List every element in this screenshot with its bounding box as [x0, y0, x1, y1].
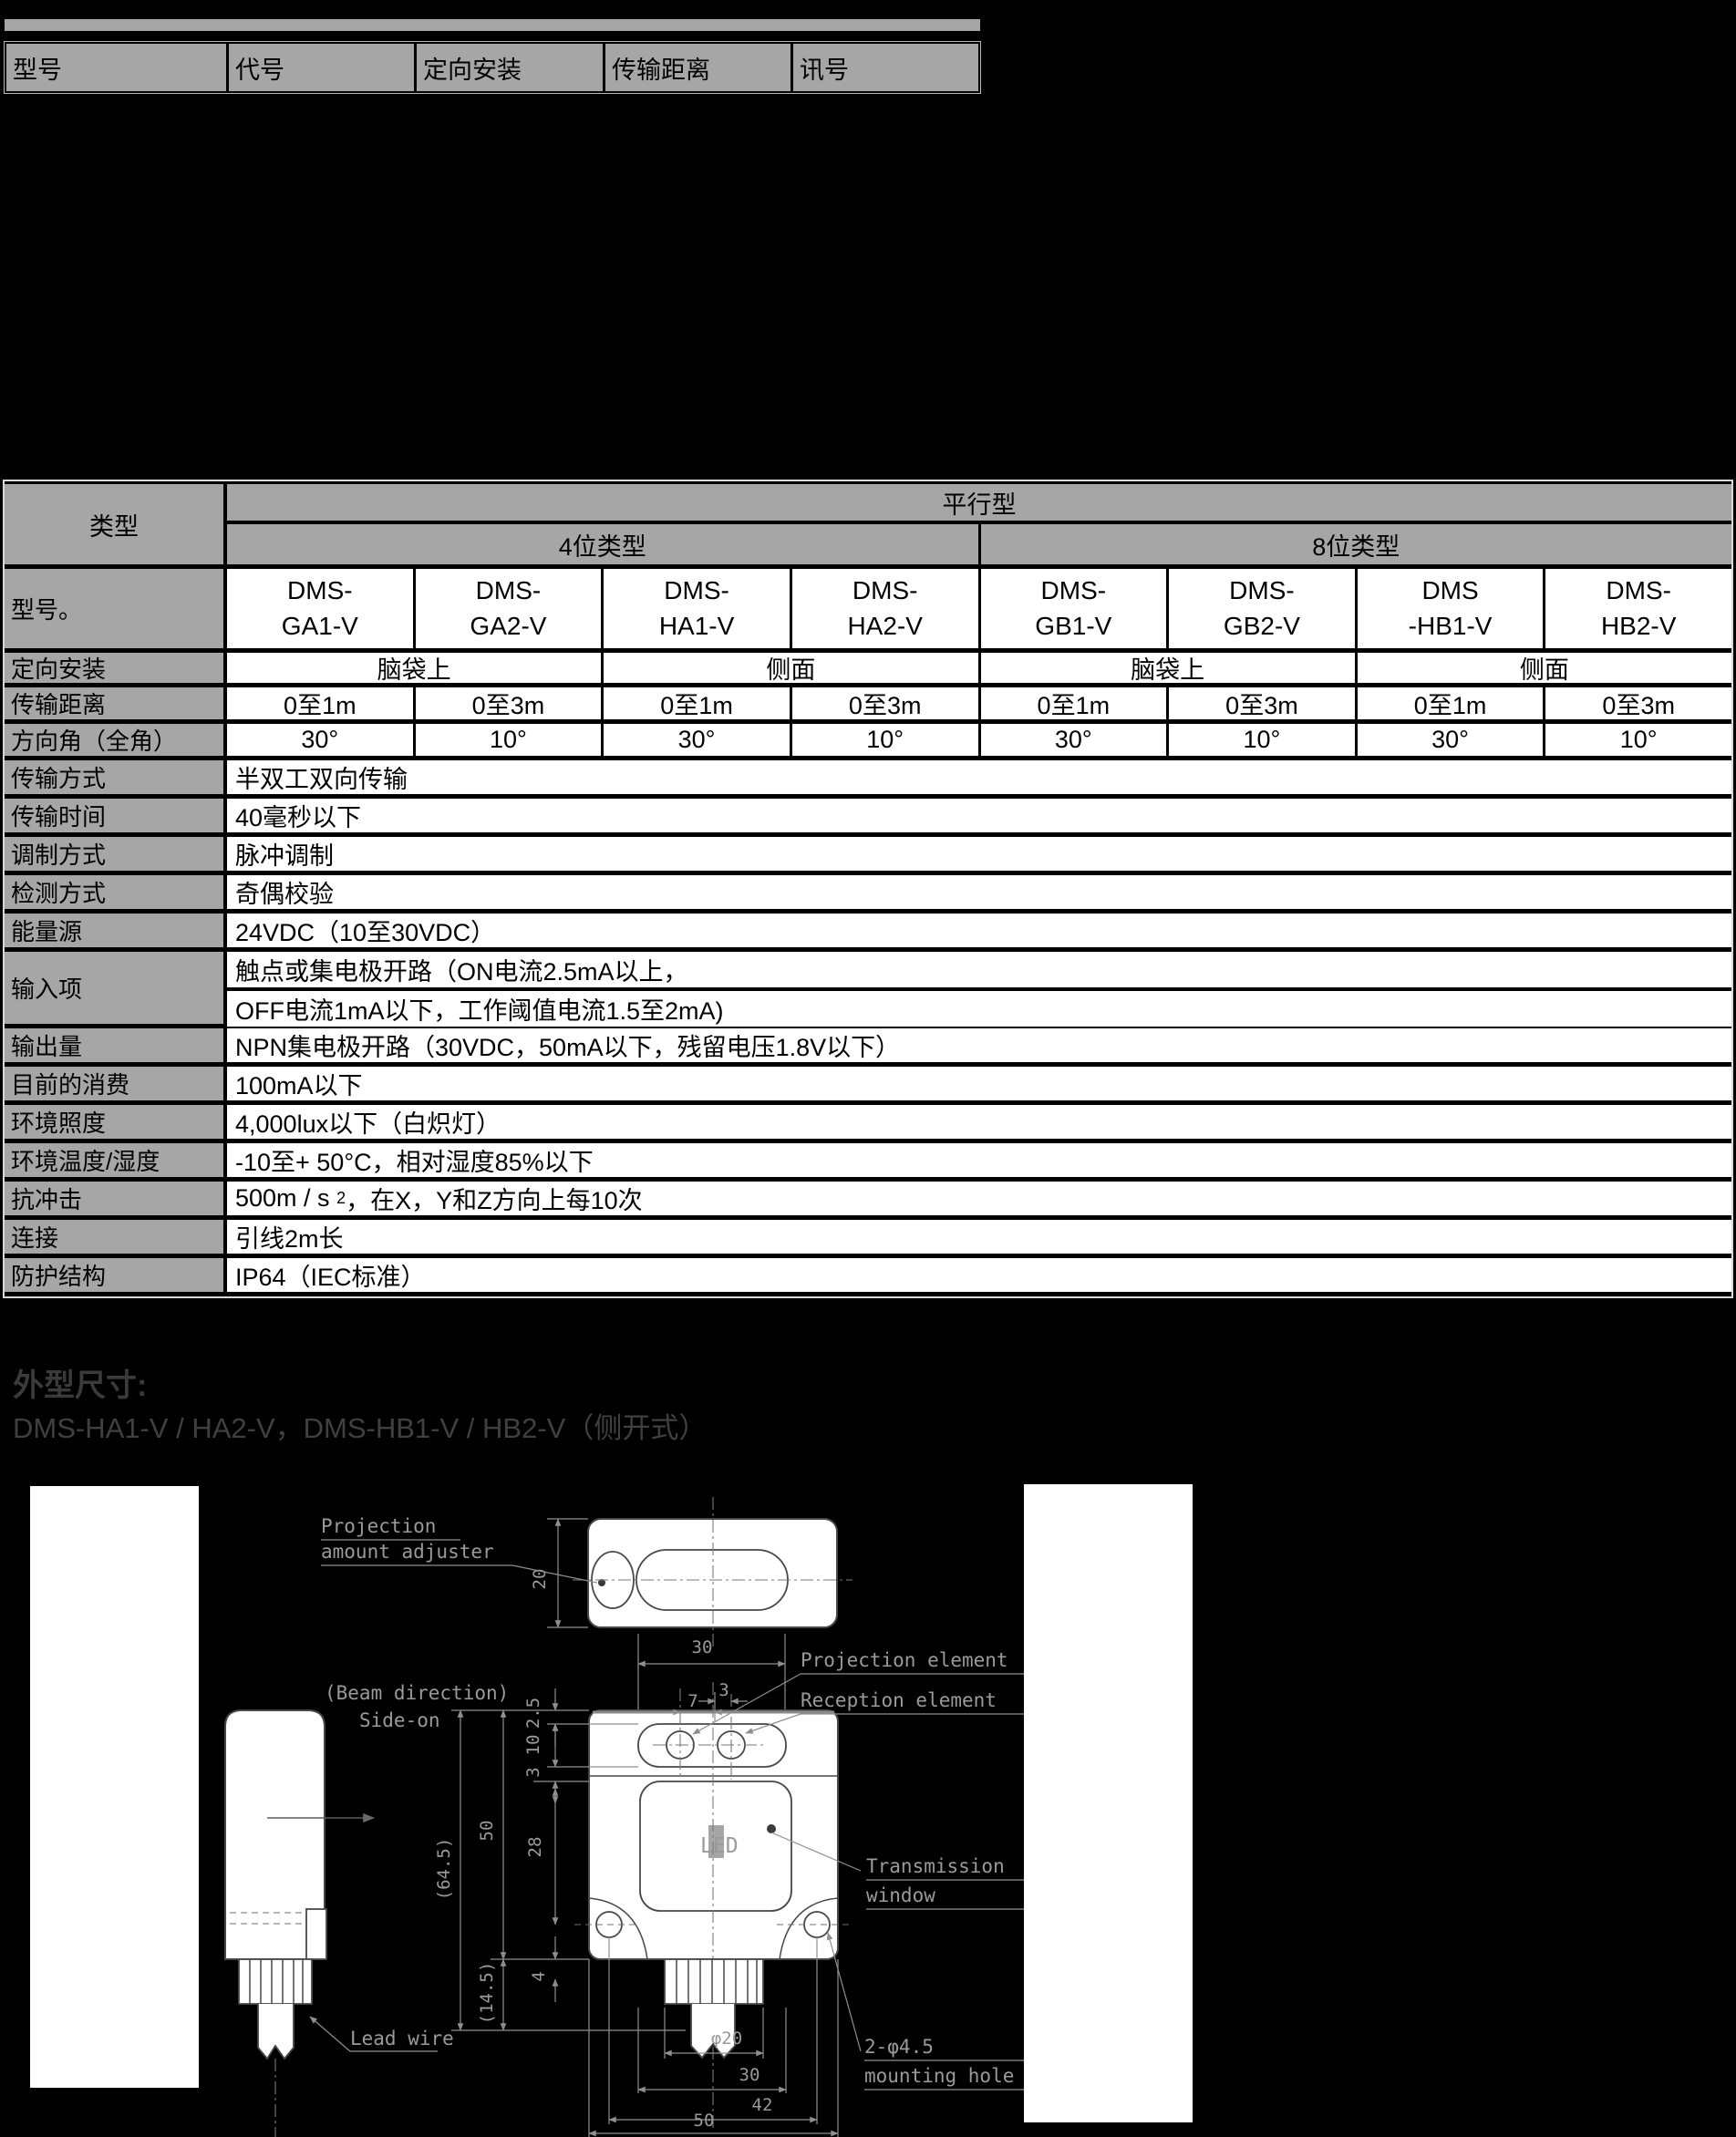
distance-cell: 0至3m [416, 687, 604, 719]
dim-cable-dia: φ20 [711, 2029, 742, 2049]
front-view: LED [574, 1682, 850, 2130]
angle-cell: 10° [792, 724, 981, 756]
projection-adjuster-label2: amount adjuster [321, 1541, 494, 1563]
transmission-window-label: Transmission [866, 1855, 1005, 1877]
distance-cell: 0至1m [981, 687, 1170, 719]
outline-drawing: 20 Projection amount adjuster 30 (Beam d… [0, 1445, 1736, 2137]
spec-row-shock: 抗冲击 500m / s 2，在X，Y和Z方向上每10次 [5, 1182, 1731, 1220]
dim-hole-pitch: 42 [752, 2095, 773, 2115]
mounting-hole-label2: mounting hole [864, 2065, 1014, 2087]
table-header-block: 类型 平行型 4位类型 8位类型 [5, 484, 1731, 569]
top-view: 20 Projection amount adjuster [321, 1497, 852, 1650]
dim-top-view-height: 20 [530, 1569, 550, 1590]
angle-cell: 30° [1358, 724, 1546, 756]
svg-text:30: 30 [692, 1637, 713, 1657]
spec-row-connection: 连接引线2m长 [5, 1220, 1731, 1258]
distance-label: 传输距离 [5, 687, 227, 719]
orientation-row: 定向安装 脑袋上 侧面 脑袋上 侧面 [5, 653, 1731, 687]
model-cell: DMS-GA2-V [416, 569, 604, 648]
reception-element-label: Reception element [801, 1689, 997, 1711]
lead-wire-label: Lead wire [350, 2028, 454, 2049]
model-cell: DMS-HB1-V [1358, 569, 1546, 648]
svg-text:7: 7 [687, 1691, 697, 1711]
subgroup-8bit: 8位类型 [981, 524, 1732, 564]
beam-direction-label: (Beam direction) [325, 1682, 509, 1704]
angle-row: 方向角（全角） 30° 10° 30° 10° 30° 10° 30° 10° [5, 724, 1731, 760]
svg-text:2.5: 2.5 [523, 1698, 543, 1729]
model-row-label: 型号。 [5, 569, 227, 648]
orientation-cell: 脑袋上 [981, 653, 1358, 683]
model-cell: DMS-GB2-V [1169, 569, 1358, 648]
svg-text:(14.5): (14.5) [477, 1962, 497, 2025]
dim-window-width: 30 [739, 2065, 760, 2085]
top-header-signal: 讯号 [793, 44, 978, 91]
left-white-block [30, 1486, 199, 2088]
dimensions-subtitle: DMS-HA1-V / HA2-V，DMS-HB1-V / HB2-V（侧开式） [13, 1405, 707, 1446]
corner-type-label: 类型 [5, 484, 227, 564]
datasheet-page: { "colors": { "background": "#000000", "… [0, 0, 1736, 2137]
right-white-block [1024, 1484, 1193, 2122]
angle-cell: 30° [604, 724, 792, 756]
top-edge-strip [5, 19, 980, 31]
spec-row-ambient-light: 环境照度4,000lux以下（白炽灯） [5, 1105, 1731, 1143]
transmission-window-label2: window [866, 1884, 935, 1906]
side-cable [258, 2004, 294, 2059]
svg-text:28: 28 [525, 1837, 545, 1858]
spec-row-input: 输入项 触点或集电极开路（ON电流2.5mA以上， OFF电流1mA以下，工作阈… [5, 952, 1731, 1028]
spec-row-temp-humidity: 环境温度/湿度-10至+ 50°C，相对湿度85%以下 [5, 1143, 1731, 1182]
distance-cell: 0至3m [1545, 687, 1731, 719]
distance-cell: 0至3m [792, 687, 981, 719]
model-code-header-table: 型号 代号 定向安装 传输距离 讯号 [5, 42, 980, 93]
angle-cell: 30° [981, 724, 1170, 756]
orientation-cell: 侧面 [1358, 653, 1731, 683]
spec-row-power: 能量源24VDC（10至30VDC） [5, 914, 1731, 952]
spec-row-output: 输出量NPN集电极开路（30VDC，50mA以下，残留电压1.8V以下） [5, 1028, 1731, 1067]
model-cell: DMS-HA1-V [604, 569, 792, 648]
window-dot [767, 1824, 776, 1833]
angle-cell: 10° [1169, 724, 1358, 756]
led-label: LED [700, 1834, 739, 1858]
spec-row-current-consumption: 目前的消费100mA以下 [5, 1067, 1731, 1105]
spec-row-protection: 防护结构IP64（IEC标准） [5, 1258, 1731, 1296]
spec-row-detection: 检测方式奇偶校验 [5, 875, 1731, 914]
orientation-cell: 脑袋上 [227, 653, 604, 683]
svg-text:(64.5): (64.5) [434, 1838, 454, 1901]
mounting-hole-label: 2-φ4.5 [864, 2036, 934, 2058]
dimensions-heading: 外型尺寸: [13, 1360, 147, 1405]
model-cell: DMS-GB1-V [981, 569, 1170, 648]
spec-row-modulation: 调制方式脉冲调制 [5, 837, 1731, 875]
angle-cell: 10° [416, 724, 604, 756]
dim-element-span: 30 [638, 1634, 785, 1721]
beam-direction-label2: Side-on [359, 1709, 440, 1731]
distance-cell: 0至1m [1358, 687, 1546, 719]
angle-label: 方向角（全角） [5, 724, 227, 756]
model-cell: DMS-GA1-V [227, 569, 416, 648]
orientation-cell: 侧面 [604, 653, 980, 683]
distance-cell: 0至3m [1169, 687, 1358, 719]
top-header-distance: 传输距离 [605, 44, 793, 91]
model-row: 型号。 DMS-GA1-V DMS-GA2-V DMS-HA1-V DMS-HA… [5, 569, 1731, 653]
spec-row-transmission-method: 传输方式半双工双向传输 [5, 760, 1731, 799]
subgroup-4bit: 4位类型 [227, 524, 981, 564]
svg-text:3: 3 [523, 1767, 543, 1777]
angle-cell: 30° [227, 724, 416, 756]
dim-body-width: 50 [694, 2111, 715, 2131]
distance-cell: 0至1m [604, 687, 792, 719]
svg-text:4: 4 [529, 1971, 549, 1981]
top-header-orientation: 定向安装 [417, 44, 605, 91]
side-view: (Beam direction) Side-on Lead wire [225, 1682, 509, 2137]
projection-adjuster-label: Projection [321, 1515, 436, 1537]
specification-table: 类型 平行型 4位类型 8位类型 型号。 DMS-GA1-V DMS-GA2-V… [5, 481, 1731, 1296]
model-cell: DMS-HB2-V [1545, 569, 1731, 648]
group-header-parallel: 平行型 [227, 484, 1731, 524]
angle-cell: 10° [1545, 724, 1731, 756]
svg-text:3: 3 [718, 1680, 728, 1700]
distance-cell: 0至1m [227, 687, 416, 719]
top-header-code: 代号 [229, 44, 417, 91]
spec-row-transmission-time: 传输时间40毫秒以下 [5, 799, 1731, 837]
model-cell: DMS-HA2-V [792, 569, 981, 648]
projection-element-label: Projection element [801, 1649, 1008, 1671]
orientation-label: 定向安装 [5, 653, 227, 683]
distance-row: 传输距离 0至1m 0至3m 0至1m 0至3m 0至1m 0至3m 0至1m … [5, 687, 1731, 724]
svg-text:50: 50 [477, 1821, 497, 1842]
svg-text:10: 10 [523, 1735, 543, 1756]
top-header-model: 型号 [6, 44, 229, 91]
